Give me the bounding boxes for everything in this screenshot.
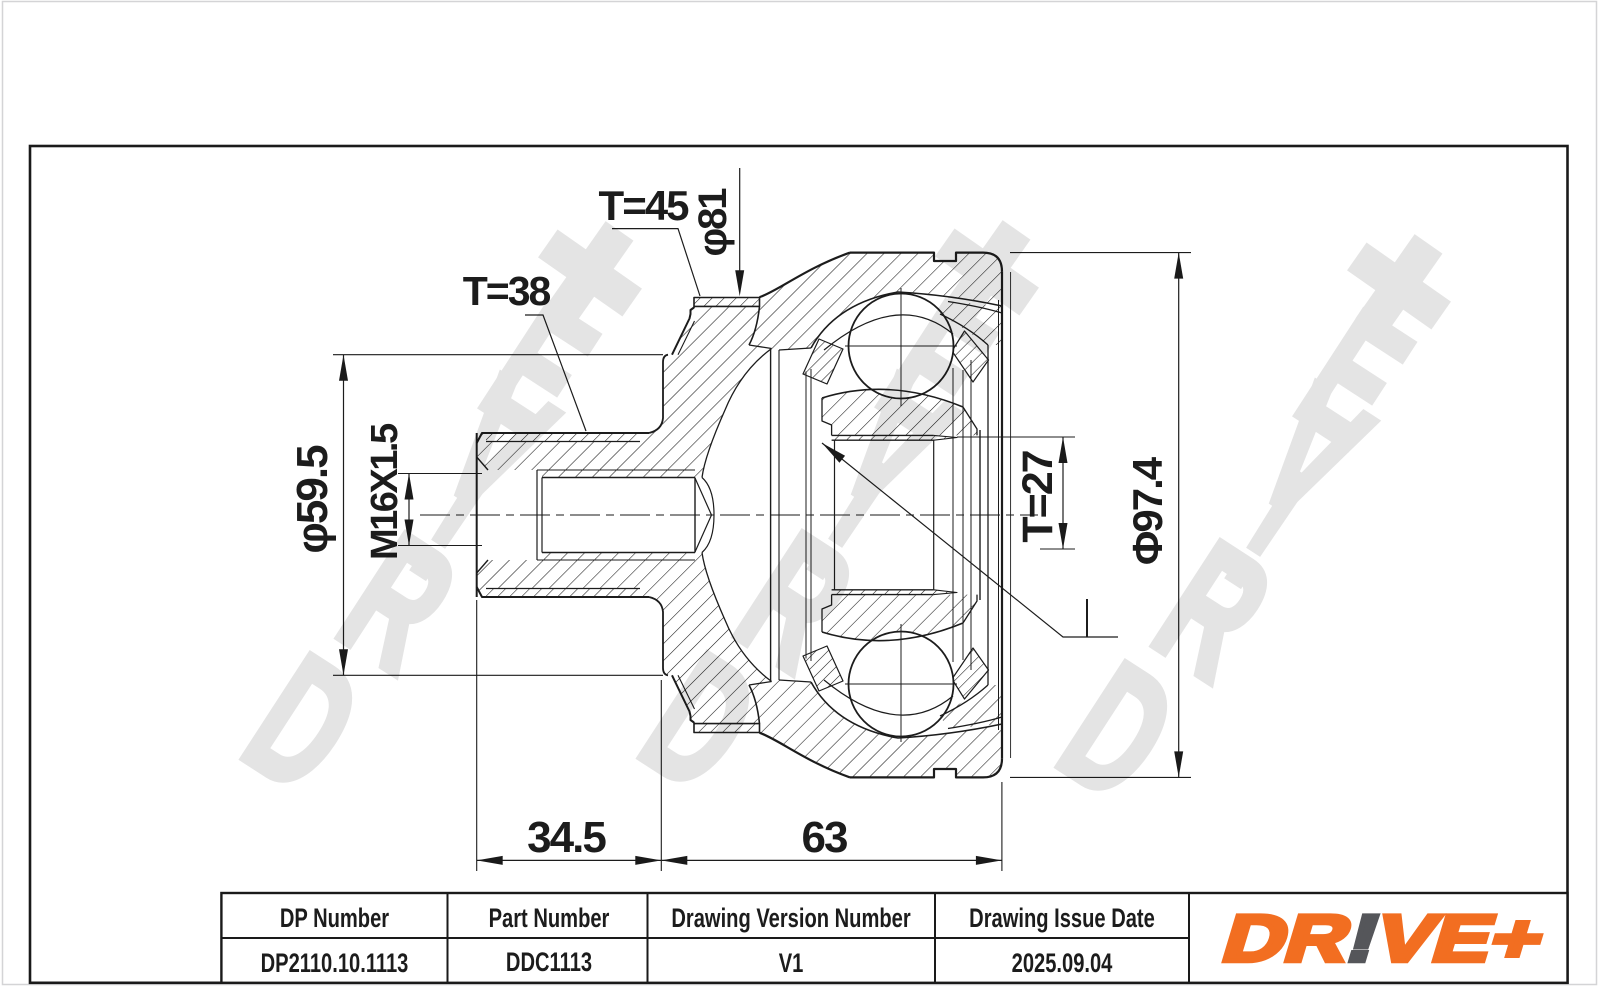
svg-text:φ81: φ81 [691,188,735,257]
svg-text:Part Number: Part Number [489,903,610,932]
svg-text:DP Number: DP Number [280,903,389,932]
svg-text:63: 63 [802,813,847,862]
svg-text:DP2110.10.1113: DP2110.10.1113 [261,948,409,977]
svg-text:DR!VE+: DR!VE+ [1215,902,1554,975]
svg-text:T=45: T=45 [599,182,690,229]
svg-text:Φ97.4: Φ97.4 [1124,456,1171,565]
svg-text:34.5: 34.5 [527,813,606,862]
svg-text:DDC1113: DDC1113 [506,947,592,976]
svg-text:φ59.5: φ59.5 [288,445,337,554]
svg-text:Drawing Version Number: Drawing Version Number [671,903,910,932]
svg-text:V1: V1 [779,948,804,977]
svg-text:2025.09.04: 2025.09.04 [1012,948,1113,977]
svg-text:T=27: T=27 [1014,450,1062,542]
svg-text:Drawing Issue Date: Drawing Issue Date [969,903,1155,932]
